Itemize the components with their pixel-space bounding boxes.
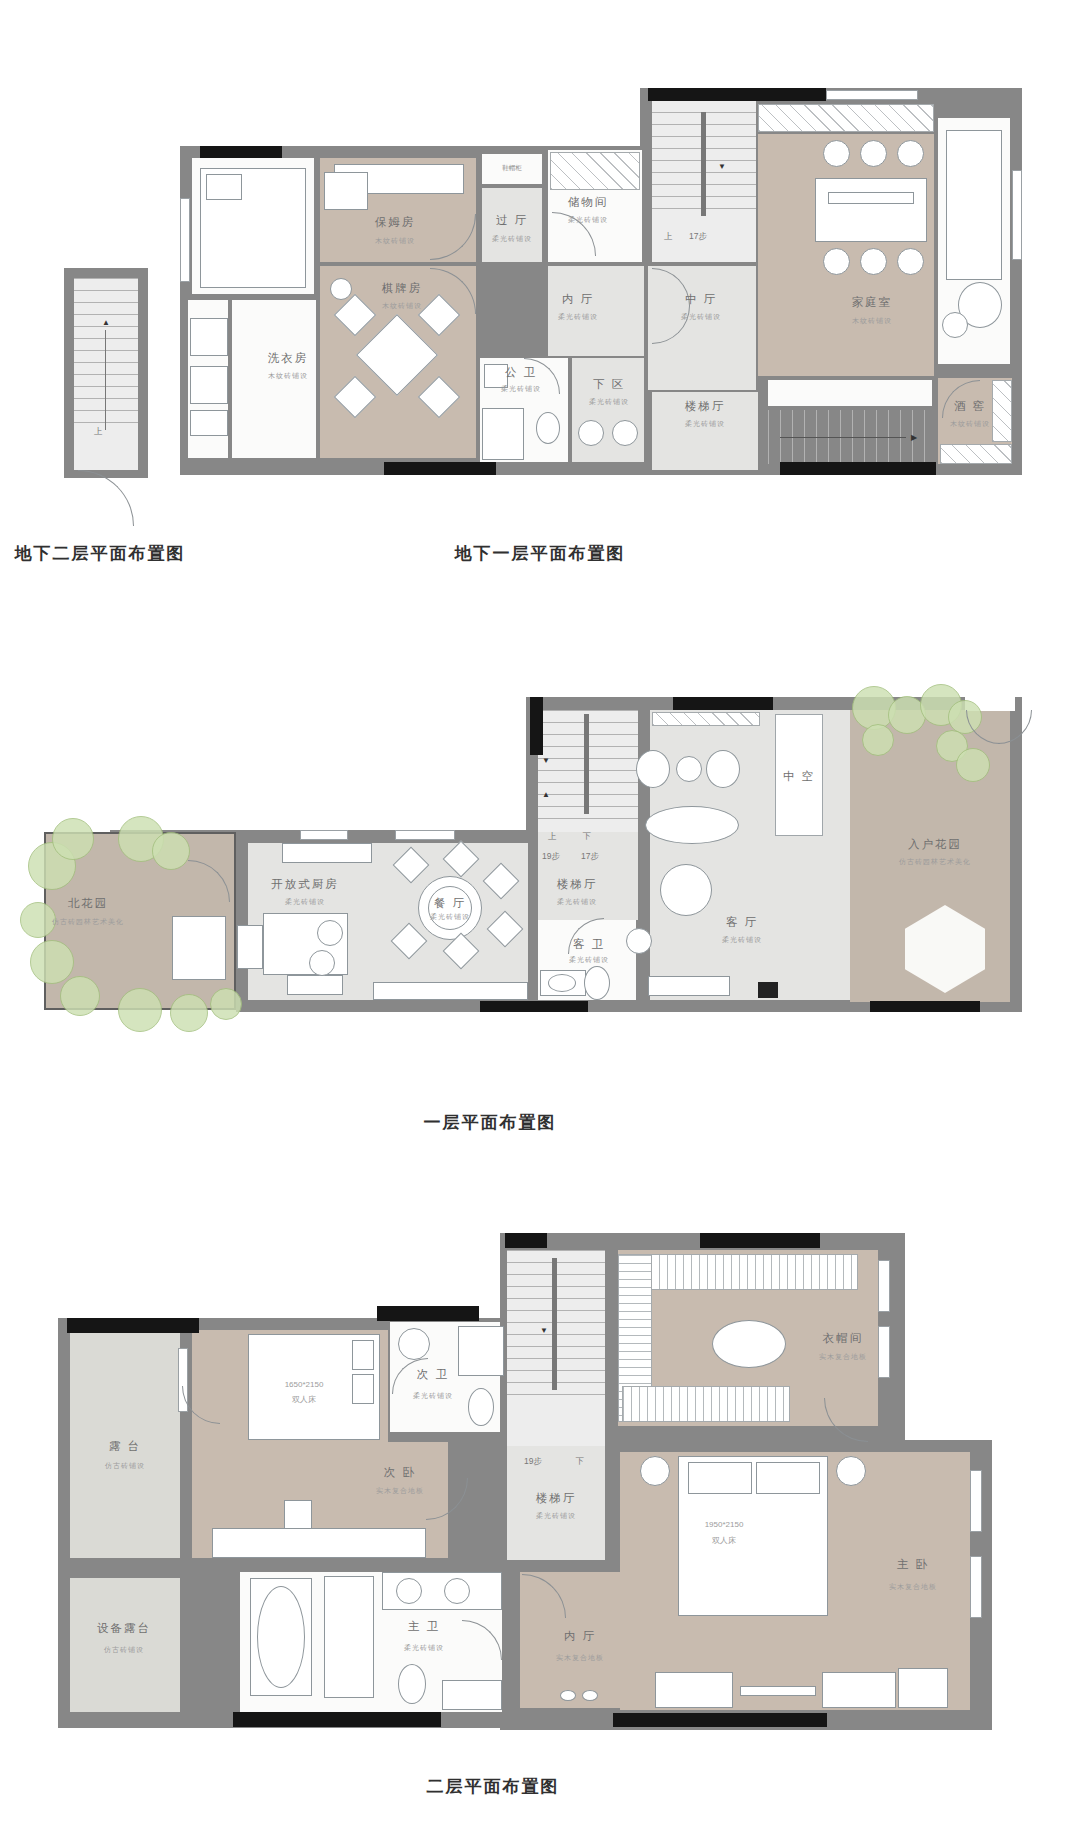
- room-label: 餐 厅: [434, 896, 466, 911]
- plan-caption: 地下二层平面布置图: [15, 542, 186, 565]
- wall-black: [673, 697, 773, 710]
- arrow-icon: ▲: [102, 318, 110, 327]
- toilet: [536, 412, 560, 444]
- chair: [823, 140, 850, 167]
- ottoman: [626, 928, 652, 954]
- bathtub-basin: [257, 1586, 305, 1688]
- room-label: 中 厅: [685, 292, 717, 307]
- tree-icon: [20, 902, 56, 938]
- window: [180, 198, 190, 282]
- room-sublabel: 仿古砖园林艺术美化: [899, 857, 971, 867]
- stair-note: 上: [548, 831, 557, 843]
- garden-shed: [172, 916, 226, 980]
- room-sublabel: 柔光砖铺设: [285, 897, 325, 907]
- slipper: [582, 1690, 598, 1701]
- room-label: 主 卧: [897, 1557, 929, 1572]
- wardrobe: [822, 1672, 896, 1708]
- room-label: 内 厅: [562, 292, 594, 307]
- basin: [548, 974, 576, 992]
- room-floor: [548, 266, 644, 356]
- room-label: 露 台: [109, 1439, 141, 1454]
- toilet: [468, 1388, 494, 1426]
- room-sublabel: 柔光砖铺设: [557, 897, 597, 907]
- arrow-icon: ▶: [911, 433, 917, 442]
- armchair: [636, 750, 670, 788]
- stair-rail: [584, 714, 589, 814]
- plan-caption: 一层平面布置图: [424, 1111, 557, 1134]
- stove: [287, 975, 343, 995]
- wall-black: [780, 462, 936, 475]
- stair-note: 上: [94, 426, 103, 438]
- room-label: 次 卧: [384, 1465, 416, 1480]
- corner-cabinet: [898, 1668, 948, 1708]
- room-floor: [758, 104, 934, 132]
- chair: [897, 248, 924, 275]
- room-label: 储物间: [568, 195, 609, 210]
- arrow-icon: ▼: [542, 756, 550, 765]
- stair-note: 19步: [542, 851, 560, 863]
- shower: [458, 1326, 504, 1376]
- stair-note: 上: [664, 231, 673, 243]
- tree-icon: [210, 988, 242, 1020]
- room-floor: [940, 444, 1012, 464]
- table: [815, 178, 927, 242]
- pillow: [688, 1462, 752, 1494]
- room-label: 内 厅: [564, 1629, 596, 1644]
- room-label: 楼梯厅: [557, 877, 598, 892]
- cabinet-label: 鞋帽柜: [502, 164, 522, 173]
- window: [970, 1470, 982, 1532]
- counter: [373, 982, 528, 1000]
- tree-icon: [52, 818, 94, 860]
- room-label: 楼梯厅: [536, 1491, 577, 1506]
- room-sublabel: 木纹砖铺设: [852, 316, 892, 326]
- nightstand: [640, 1456, 670, 1486]
- room-label: 入户花园: [908, 837, 962, 852]
- wall-black: [377, 1306, 479, 1321]
- room-floor: [622, 1386, 790, 1422]
- room-sublabel: 木纹砖铺设: [950, 419, 990, 429]
- window: [300, 830, 348, 840]
- door-arc: [998, 710, 1032, 744]
- wall-black: [67, 1318, 199, 1333]
- room-floor: [652, 712, 760, 726]
- room-sublabel: 木纹砖铺设: [375, 236, 415, 246]
- chair: [823, 248, 850, 275]
- shower: [324, 1576, 374, 1698]
- wardrobe: [212, 1528, 426, 1558]
- tree-icon: [30, 940, 74, 984]
- room-sublabel: 柔光砖铺设: [501, 384, 541, 394]
- stair-direction-line: [105, 330, 106, 430]
- tv-cabinet: [648, 976, 730, 996]
- toilet: [584, 966, 610, 1000]
- armchair: [706, 750, 740, 788]
- sofa: [645, 806, 739, 844]
- room-sublabel: 柔光砖铺设: [569, 955, 609, 965]
- basin: [612, 420, 638, 446]
- stool: [317, 920, 343, 946]
- door-arc: [78, 470, 134, 526]
- room-sublabel: 柔光砖铺设: [413, 1391, 453, 1401]
- rug: [712, 1320, 786, 1368]
- room-sublabel: 柔光砖铺设: [430, 912, 470, 922]
- window: [1012, 170, 1022, 260]
- shelf: [190, 410, 228, 436]
- pillow: [756, 1462, 820, 1494]
- room-label: 保姆房: [375, 215, 416, 230]
- stair-note: 17步: [689, 231, 707, 243]
- basin: [444, 1578, 470, 1604]
- bed-size-label: 双人床: [712, 1535, 736, 1546]
- desk: [324, 172, 368, 210]
- cabinet: [282, 843, 372, 863]
- window: [395, 830, 455, 840]
- room-sublabel: 柔光砖铺设: [404, 1643, 444, 1653]
- room-label: 公 卫: [505, 365, 537, 380]
- room-sublabel: 实木复合地板: [889, 1582, 937, 1592]
- room-sublabel: 柔光砖铺设: [589, 397, 629, 407]
- floorplan-canvas: ▲上地下二层平面布置图保姆房木纹砖铺设鞋帽柜过 厅柔光砖铺设储物间柔光砖铺设棋牌…: [0, 0, 1080, 1837]
- nightstand: [836, 1456, 866, 1486]
- side-table: [942, 312, 968, 338]
- room-sublabel: 柔光砖铺设: [558, 312, 598, 322]
- washer: [190, 318, 228, 356]
- room-label: 下 区: [593, 377, 625, 392]
- arrow-icon: ▲: [542, 790, 550, 799]
- cabinet: [442, 1680, 502, 1710]
- basin: [396, 1578, 422, 1604]
- chair: [897, 140, 924, 167]
- bed-size-label: 1650*2150: [285, 1380, 324, 1389]
- bed-size-label: 1950*2150: [705, 1520, 744, 1529]
- window: [878, 1326, 890, 1378]
- room-sublabel: 柔光砖铺设: [492, 234, 532, 244]
- bed-size-label: 双人床: [292, 1394, 316, 1405]
- sink-counter: [237, 925, 263, 969]
- room-label: 过 厅: [496, 213, 528, 228]
- tree-icon: [862, 724, 894, 756]
- rug: [660, 864, 712, 916]
- wall-black: [648, 88, 826, 101]
- shower: [482, 408, 524, 460]
- room-label: 家庭室: [852, 295, 893, 310]
- stool: [309, 950, 335, 976]
- chair: [860, 248, 887, 275]
- tree-icon: [152, 832, 190, 870]
- room-sublabel: 仿古砖铺设: [105, 1461, 145, 1471]
- tv-shelf: [740, 1686, 816, 1696]
- wardrobe: [946, 130, 1002, 280]
- stair-rail: [552, 1258, 557, 1390]
- stair-direction-line: [780, 437, 906, 438]
- room-label: 次 卫: [417, 1367, 449, 1382]
- basin: [578, 420, 604, 446]
- room-sublabel: 实木复合地板: [556, 1653, 604, 1663]
- window: [878, 1260, 890, 1312]
- room-sublabel: 实木复合地板: [819, 1352, 867, 1362]
- arrow-icon: ▼: [718, 162, 726, 171]
- room-floor: [768, 380, 932, 406]
- wall-black: [200, 146, 282, 158]
- stair-note: 17步: [581, 851, 599, 863]
- room-label: 主 卫: [408, 1619, 440, 1634]
- room-label: 开放式厨房: [271, 877, 339, 892]
- floor-lamp: [330, 278, 352, 300]
- toilet: [398, 1664, 426, 1704]
- plan-caption: 地下一层平面布置图: [455, 542, 626, 565]
- wall-black: [480, 1001, 588, 1012]
- pillow: [352, 1374, 374, 1404]
- stair-rail: [701, 112, 706, 216]
- room-sublabel: 木纹砖铺设: [268, 371, 308, 381]
- stair-note: 下: [583, 831, 592, 843]
- chair: [860, 140, 887, 167]
- side-table: [676, 756, 702, 782]
- window: [970, 1556, 982, 1618]
- room-floor: [550, 152, 640, 190]
- room-sublabel: 柔光砖铺设: [722, 935, 762, 945]
- room-label: 衣帽间: [823, 1331, 864, 1346]
- pillow: [352, 1340, 374, 1370]
- room-sublabel: 柔光砖铺设: [681, 312, 721, 322]
- room-sublabel: 实木复合地板: [376, 1486, 424, 1496]
- room-label: 棋牌房: [382, 281, 423, 296]
- room-sublabel: 柔光砖铺设: [536, 1511, 576, 1521]
- wall-black: [613, 1713, 827, 1727]
- plan-caption: 二层平面布置图: [427, 1775, 560, 1798]
- room-sublabel: 柔光砖铺设: [568, 215, 608, 225]
- room-sublabel: 仿古砖铺设: [104, 1645, 144, 1655]
- room-sublabel: 仿古砖园林艺术美化: [52, 917, 124, 927]
- room-label: 楼梯厅: [685, 399, 726, 414]
- wall-black: [700, 1233, 820, 1248]
- washer: [190, 366, 228, 404]
- room-label: 客 卫: [573, 937, 605, 952]
- room-label: 酒 窖: [954, 399, 986, 414]
- tree-icon: [956, 748, 990, 782]
- pillow: [206, 174, 242, 200]
- room-floor: [572, 358, 644, 462]
- wall-black: [870, 1001, 980, 1012]
- room-label: 洗衣房: [268, 351, 309, 366]
- tree-icon: [60, 976, 100, 1016]
- fireplace: [758, 982, 778, 998]
- stair-note: 19步: [524, 1456, 542, 1468]
- room-label: 客 厅: [726, 915, 758, 930]
- wall-black: [233, 1712, 441, 1727]
- window: [826, 90, 918, 100]
- stair-note: 下: [576, 1456, 585, 1468]
- room-sublabel: 柔光砖铺设: [685, 419, 725, 429]
- tree-icon: [170, 994, 208, 1032]
- slipper: [560, 1690, 576, 1701]
- basin: [398, 1328, 430, 1360]
- room-label: 中 空: [783, 769, 815, 784]
- room-floor: [650, 1254, 858, 1290]
- wall-black: [505, 1233, 547, 1248]
- arrow-icon: ▼: [540, 1326, 548, 1335]
- room-sublabel: 木纹砖铺设: [382, 301, 422, 311]
- wardrobe: [655, 1672, 733, 1708]
- room-label: 北花园: [68, 896, 109, 911]
- table-inlay: [828, 192, 914, 204]
- wall-black: [384, 462, 496, 475]
- room-floor: [992, 380, 1012, 442]
- desk-chair: [284, 1500, 312, 1530]
- tree-icon: [118, 988, 162, 1032]
- room-label: 设备露台: [97, 1621, 151, 1636]
- room-floor: [74, 278, 138, 426]
- wall-black: [530, 697, 543, 755]
